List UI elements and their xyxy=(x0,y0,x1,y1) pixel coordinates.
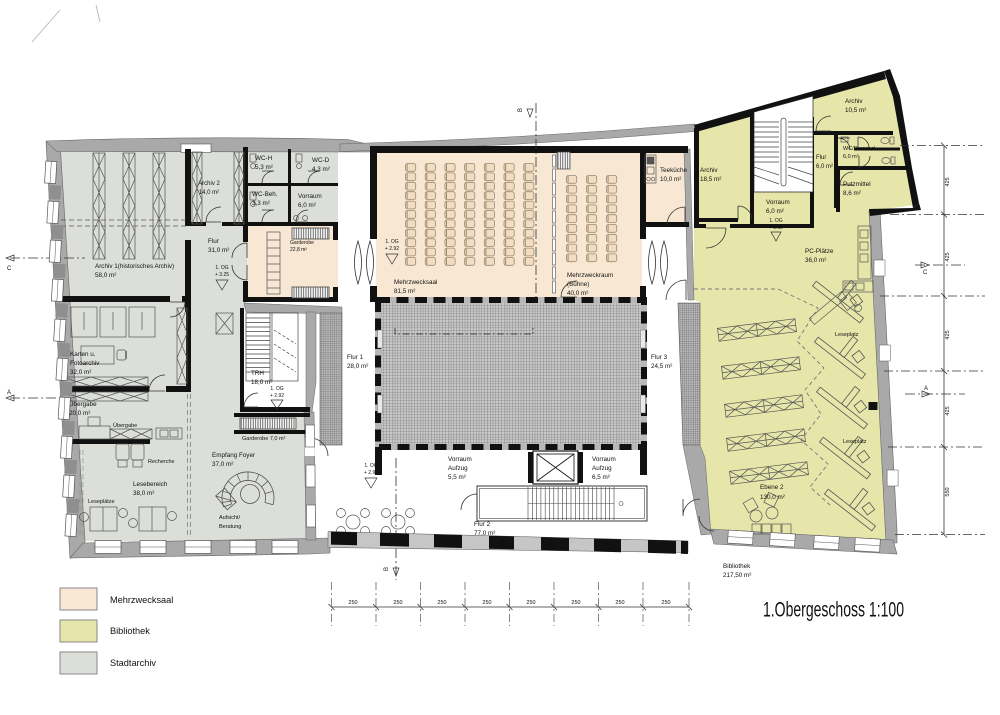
svg-text:Aufzug: Aufzug xyxy=(592,465,612,472)
svg-text:1. OG: 1. OG xyxy=(364,463,377,469)
svg-text:B: B xyxy=(384,567,390,571)
svg-text:Übergabe: Übergabe xyxy=(113,422,137,429)
svg-text:Aufzug: Aufzug xyxy=(448,465,468,472)
svg-text:Teeküche: Teeküche xyxy=(660,167,687,174)
svg-text:+ 2.92: + 2.92 xyxy=(270,393,284,399)
svg-text:Archiv: Archiv xyxy=(845,98,863,105)
svg-text:5,5 m²: 5,5 m² xyxy=(448,474,466,481)
svg-text:18,5 m²: 18,5 m² xyxy=(700,176,721,183)
svg-text:Lesebereich: Lesebereich xyxy=(133,481,168,488)
svg-text:Putzmittel: Putzmittel xyxy=(843,181,871,188)
svg-text:130,0 m²: 130,0 m² xyxy=(760,494,785,501)
svg-text:B: B xyxy=(518,108,524,112)
svg-text:550: 550 xyxy=(945,487,951,496)
svg-text:WC-Beh.: WC-Beh. xyxy=(252,191,278,198)
svg-text:6,0 m²: 6,0 m² xyxy=(766,208,784,215)
svg-text:425: 425 xyxy=(945,330,951,339)
svg-text:3,3 m²: 3,3 m² xyxy=(252,200,270,207)
svg-text:32,0 m²: 32,0 m² xyxy=(70,369,91,376)
svg-text:C: C xyxy=(923,270,928,276)
svg-text:A: A xyxy=(924,386,928,392)
svg-text:250: 250 xyxy=(526,600,535,606)
svg-text:10,0 m²: 10,0 m² xyxy=(660,176,681,183)
svg-text:10,5 m²: 10,5 m² xyxy=(845,107,866,114)
svg-text:36,0 m²: 36,0 m² xyxy=(805,257,826,264)
svg-text:5,3 m²: 5,3 m² xyxy=(255,164,273,171)
svg-text:250: 250 xyxy=(571,600,580,606)
svg-text:81,5 m²: 81,5 m² xyxy=(394,288,415,295)
svg-text:Leseplatz: Leseplatz xyxy=(835,332,859,338)
svg-text:Bibliothek: Bibliothek xyxy=(110,626,150,636)
svg-text:250: 250 xyxy=(348,600,357,606)
svg-text:Mehrzwecksaal: Mehrzwecksaal xyxy=(394,279,437,286)
svg-text:250: 250 xyxy=(437,600,446,606)
svg-text:Übergabe: Übergabe xyxy=(69,400,97,408)
svg-text:Leseplatz: Leseplatz xyxy=(843,439,867,445)
svg-text:Leseplätze: Leseplätze xyxy=(88,499,115,505)
svg-text:250: 250 xyxy=(393,600,402,606)
svg-text:20,0 m²: 20,0 m² xyxy=(69,410,90,417)
svg-text:250: 250 xyxy=(661,600,670,606)
svg-text:Flur 1: Flur 1 xyxy=(347,354,364,361)
svg-text:Flur: Flur xyxy=(208,238,219,245)
svg-text:Bibliothek: Bibliothek xyxy=(723,563,751,570)
svg-text:Beratung: Beratung xyxy=(219,524,241,530)
svg-text:Stadtarchiv: Stadtarchiv xyxy=(110,658,156,668)
svg-text:Fotoarchiv: Fotoarchiv xyxy=(70,360,100,367)
svg-text:250: 250 xyxy=(615,600,624,606)
svg-text:+ 2.92: + 2.92 xyxy=(385,246,399,252)
svg-text:Empfang Foyer: Empfang Foyer xyxy=(212,452,255,459)
svg-text:58,0 m²: 58,0 m² xyxy=(95,272,116,279)
svg-text:Vorraum: Vorraum xyxy=(766,199,790,206)
svg-text:Archiv 2: Archiv 2 xyxy=(198,181,220,187)
svg-text:37,0 m²: 37,0 m² xyxy=(212,461,233,468)
svg-text:Garderobe 7,0 m²: Garderobe 7,0 m² xyxy=(242,436,286,442)
svg-text:6,0 m²: 6,0 m² xyxy=(843,154,859,160)
svg-text:1. OG: 1. OG xyxy=(215,265,228,271)
svg-text:WC/Personal: WC/Personal xyxy=(843,146,875,152)
svg-text:A: A xyxy=(7,390,11,396)
svg-text:+ 3.92: + 3.92 xyxy=(769,225,783,231)
svg-text:38,0 m²: 38,0 m² xyxy=(133,490,154,497)
svg-text:31,0 m²: 31,0 m² xyxy=(208,247,229,254)
svg-text:Garderobe: Garderobe xyxy=(290,240,314,246)
svg-text:425: 425 xyxy=(945,406,951,415)
svg-text:6,0 m²: 6,0 m² xyxy=(816,164,833,170)
svg-text:Ebene 2: Ebene 2 xyxy=(760,484,784,491)
svg-text:425: 425 xyxy=(945,252,951,261)
svg-text:1. OG: 1. OG xyxy=(385,239,398,245)
svg-text:Recherche: Recherche xyxy=(148,459,175,465)
svg-text:1.Obergeschoss 1:100: 1.Obergeschoss 1:100 xyxy=(763,599,904,622)
svg-text:TRH: TRH xyxy=(251,370,264,377)
svg-text:Mehrzweckraum: Mehrzweckraum xyxy=(567,272,613,279)
svg-text:C: C xyxy=(7,266,12,272)
svg-text:40,0 m²: 40,0 m² xyxy=(567,290,588,297)
svg-text:4,3 m²: 4,3 m² xyxy=(312,166,330,173)
svg-text:Flur 3: Flur 3 xyxy=(651,354,668,361)
svg-text:250: 250 xyxy=(482,600,491,606)
svg-text:425: 425 xyxy=(945,177,951,186)
svg-text:Mehrzwecksaal: Mehrzwecksaal xyxy=(110,595,173,605)
svg-text:Archiv: Archiv xyxy=(700,167,718,174)
svg-text:18,0 m²: 18,0 m² xyxy=(251,379,272,386)
svg-text:Flur: Flur xyxy=(816,155,826,161)
svg-text:Archiv 1(historisches Archiv): Archiv 1(historisches Archiv) xyxy=(95,263,174,270)
svg-text:Flur 2: Flur 2 xyxy=(474,521,491,528)
svg-text:28,0 m²: 28,0 m² xyxy=(347,363,368,370)
svg-text:Vorraum: Vorraum xyxy=(592,456,616,463)
svg-text:WC-D: WC-D xyxy=(312,157,330,164)
svg-text:Vorraum: Vorraum xyxy=(448,456,472,463)
svg-text:217,50 m²: 217,50 m² xyxy=(723,572,751,579)
svg-text:6,0 m²: 6,0 m² xyxy=(298,202,316,209)
svg-text:WC-H: WC-H xyxy=(255,155,273,162)
svg-text:24,5 m²: 24,5 m² xyxy=(651,363,672,370)
svg-text:1. OG: 1. OG xyxy=(769,218,782,224)
svg-text:PC-Plätze: PC-Plätze xyxy=(805,248,834,255)
svg-text:8,6 m²: 8,6 m² xyxy=(843,190,861,197)
svg-text:Karten u.: Karten u. xyxy=(70,351,96,358)
svg-text:1. OG: 1. OG xyxy=(270,386,283,392)
svg-text:+ 2.92: + 2.92 xyxy=(364,470,378,476)
svg-text:+ 3.25: + 3.25 xyxy=(215,272,229,278)
svg-text:Aufsicht/: Aufsicht/ xyxy=(219,515,241,521)
svg-text:14,0 m²: 14,0 m² xyxy=(199,190,219,196)
svg-text:22,8 m²: 22,8 m² xyxy=(290,247,307,253)
svg-text:(Bühne): (Bühne) xyxy=(567,281,589,288)
svg-text:6,5 m²: 6,5 m² xyxy=(592,474,610,481)
svg-text:Vorraum: Vorraum xyxy=(298,193,322,200)
